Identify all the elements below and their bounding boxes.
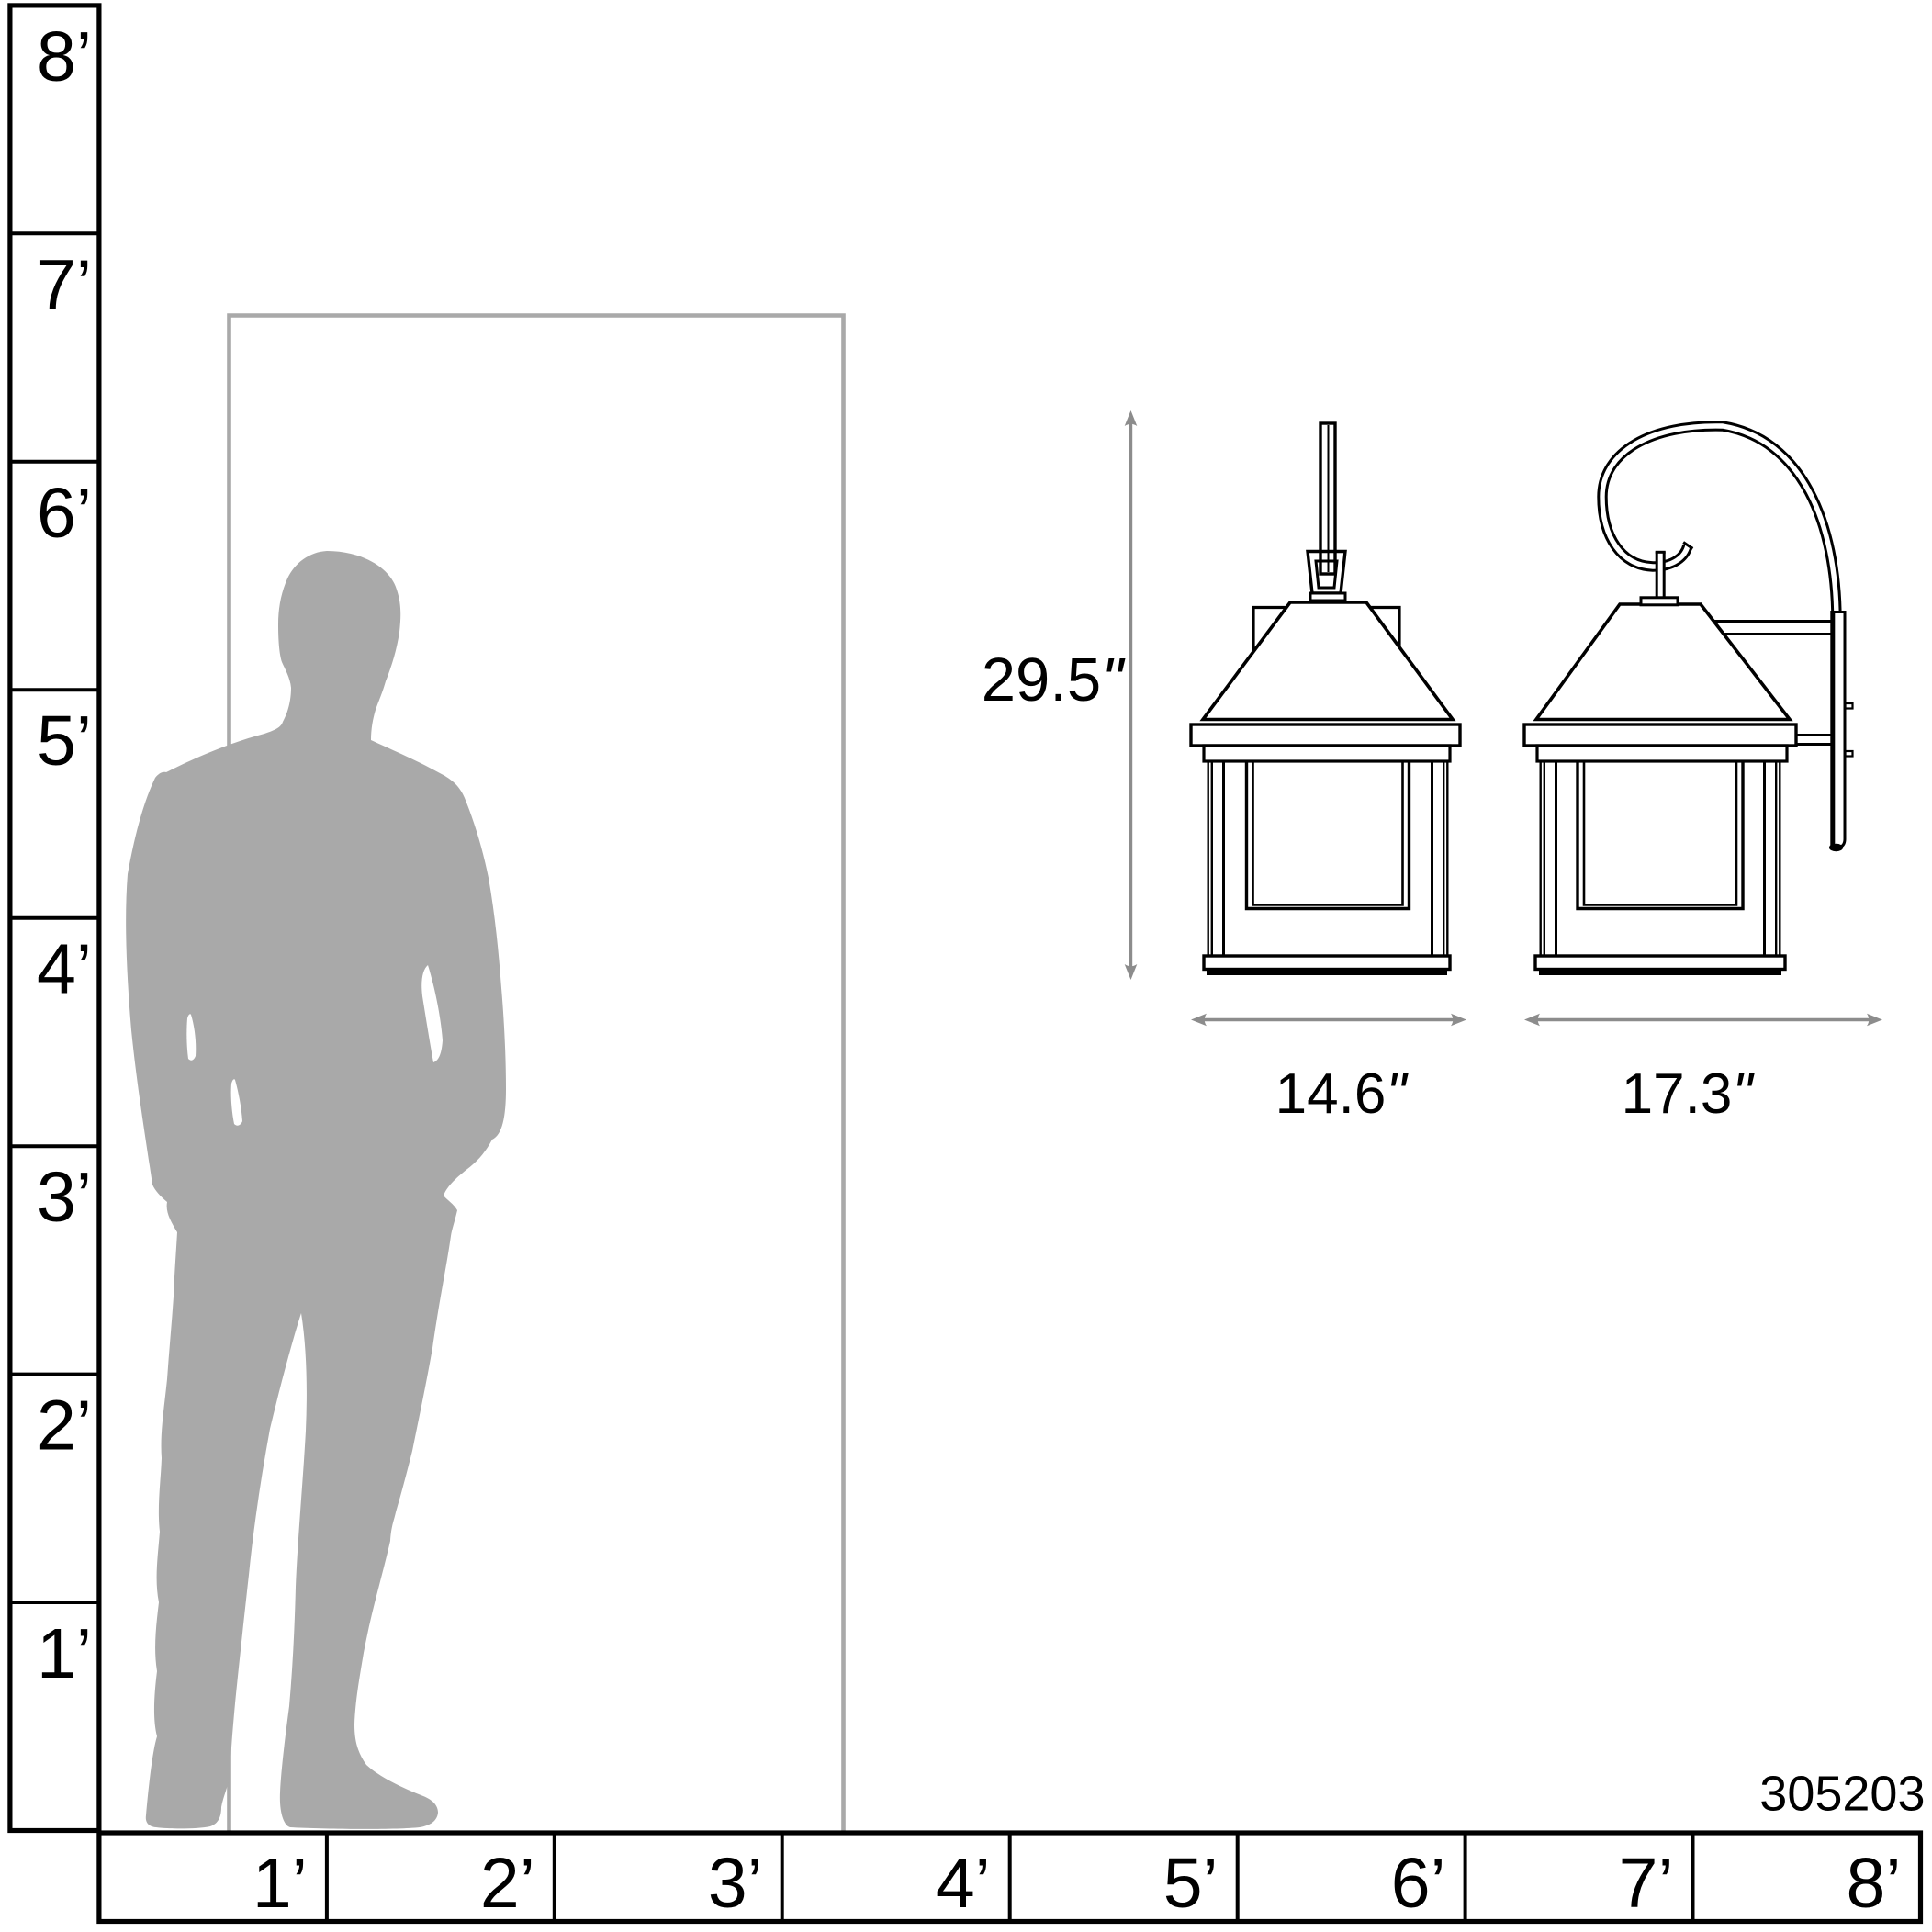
svg-text:5’: 5’ — [1163, 1844, 1219, 1923]
svg-text:3’: 3’ — [37, 1158, 92, 1237]
svg-text:1’: 1’ — [253, 1844, 308, 1923]
svg-text:305203: 305203 — [1759, 1767, 1925, 1822]
svg-text:7’: 7’ — [37, 245, 92, 324]
svg-text:6’: 6’ — [1391, 1844, 1446, 1923]
svg-text:29.5": 29.5" — [982, 646, 1126, 714]
svg-text:4’: 4’ — [37, 930, 92, 1009]
svg-text:8’: 8’ — [1847, 1844, 1902, 1923]
svg-text:2’: 2’ — [37, 1387, 92, 1466]
svg-text:17.3": 17.3" — [1622, 1062, 1756, 1126]
svg-text:1’: 1’ — [37, 1614, 92, 1693]
svg-text:14.6": 14.6" — [1275, 1062, 1410, 1126]
svg-text:6’: 6’ — [37, 474, 92, 553]
svg-text:2’: 2’ — [480, 1844, 535, 1923]
svg-text:8’: 8’ — [37, 17, 92, 96]
svg-text:5’: 5’ — [37, 702, 92, 781]
svg-text:4’: 4’ — [936, 1844, 991, 1923]
svg-text:7’: 7’ — [1619, 1844, 1674, 1923]
svg-text:3’: 3’ — [708, 1844, 763, 1923]
